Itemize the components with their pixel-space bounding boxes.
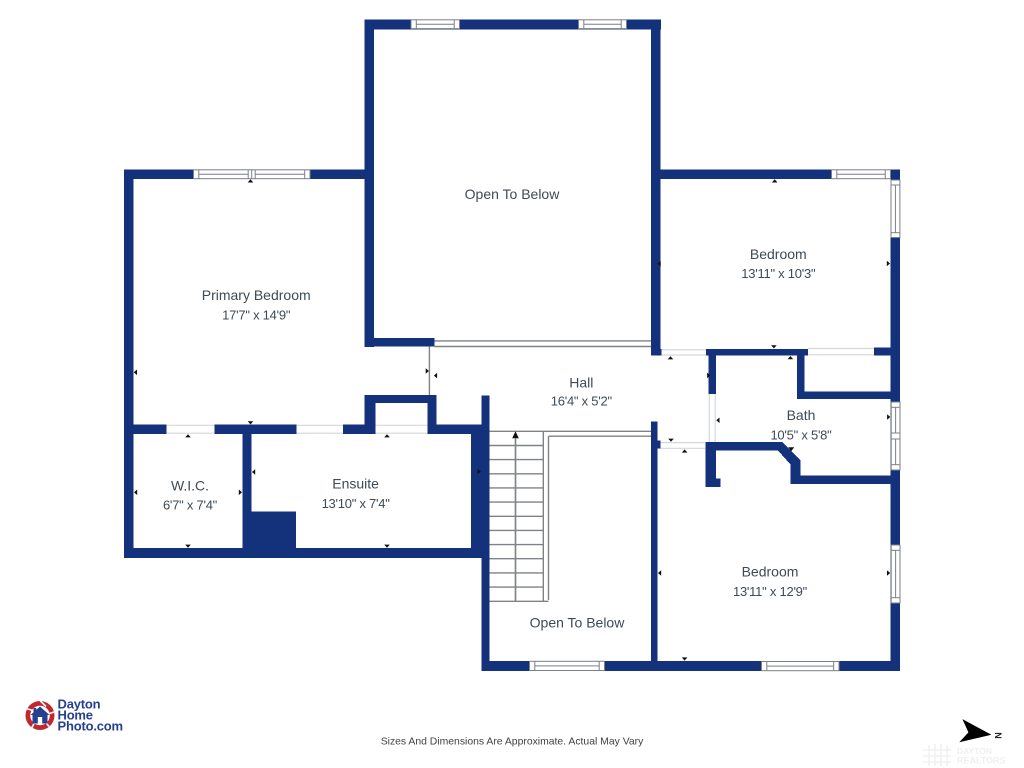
svg-text:6'7" x 7'4": 6'7" x 7'4": [163, 498, 218, 513]
svg-text:Sizes And Dimensions Are Appro: Sizes And Dimensions Are Approximate. Ac…: [381, 736, 644, 747]
svg-text:Open To Below: Open To Below: [530, 614, 626, 630]
svg-text:Bedroom: Bedroom: [750, 246, 807, 262]
svg-text:REALTORS: REALTORS: [957, 756, 1006, 766]
svg-text:13'10" x 7'4": 13'10" x 7'4": [322, 496, 391, 511]
svg-text:13'11" x 10'3": 13'11" x 10'3": [741, 266, 816, 281]
svg-text:Bath: Bath: [787, 407, 816, 423]
svg-text:10'5" x 5'8": 10'5" x 5'8": [770, 427, 832, 442]
svg-text:DAYTON: DAYTON: [957, 746, 992, 756]
svg-text:Bedroom: Bedroom: [742, 564, 799, 580]
svg-text:Primary Bedroom: Primary Bedroom: [202, 287, 311, 303]
svg-text:13'11" x 12'9": 13'11" x 12'9": [733, 584, 808, 599]
svg-text:Photo.com: Photo.com: [58, 719, 123, 734]
svg-text:N: N: [993, 732, 1003, 739]
svg-text:17'7" x 14'9": 17'7" x 14'9": [222, 308, 291, 323]
svg-text:Open To Below: Open To Below: [465, 186, 561, 202]
svg-text:Hall: Hall: [569, 375, 593, 391]
svg-text:W.I.C.: W.I.C.: [171, 478, 209, 494]
svg-text:Ensuite: Ensuite: [332, 475, 379, 491]
svg-text:16'4" x 5'2": 16'4" x 5'2": [551, 394, 613, 409]
